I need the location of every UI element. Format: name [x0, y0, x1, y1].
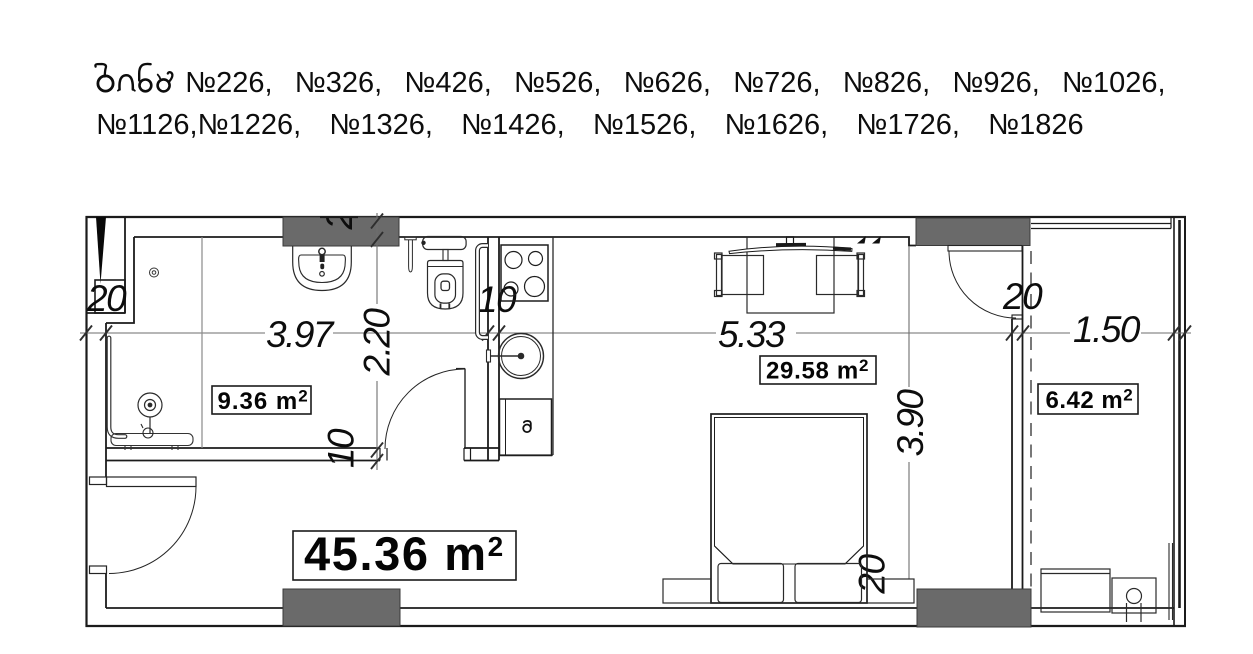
svg-text:5.33: 5.33 [718, 314, 786, 355]
svg-text:№226, №326, №426, №526, №626,: №226, №326, №426, №526, №626, №726, №826… [185, 67, 1166, 99]
svg-text:2.20: 2.20 [357, 308, 398, 377]
svg-text:10: 10 [477, 279, 517, 320]
svg-text:9.36 m2: 9.36 m2 [218, 387, 309, 416]
svg-text:3.97: 3.97 [266, 314, 335, 355]
svg-text:№1126,№1226, №1326, №1426, №15: №1126,№1226, №1326, №1426, №1526, №1626,… [96, 109, 1084, 141]
svg-text:1.50: 1.50 [1073, 309, 1141, 350]
svg-text:20: 20 [86, 278, 127, 319]
svg-text:20: 20 [1002, 276, 1043, 317]
svg-text:45.36 m2: 45.36 m2 [304, 527, 505, 580]
svg-text:29.58 m2: 29.58 m2 [766, 356, 869, 385]
svg-text:6.42 m2: 6.42 m2 [1046, 386, 1134, 415]
svg-text:3.90: 3.90 [890, 389, 931, 457]
svg-text:10: 10 [321, 428, 362, 468]
svg-text:20: 20 [852, 554, 893, 595]
